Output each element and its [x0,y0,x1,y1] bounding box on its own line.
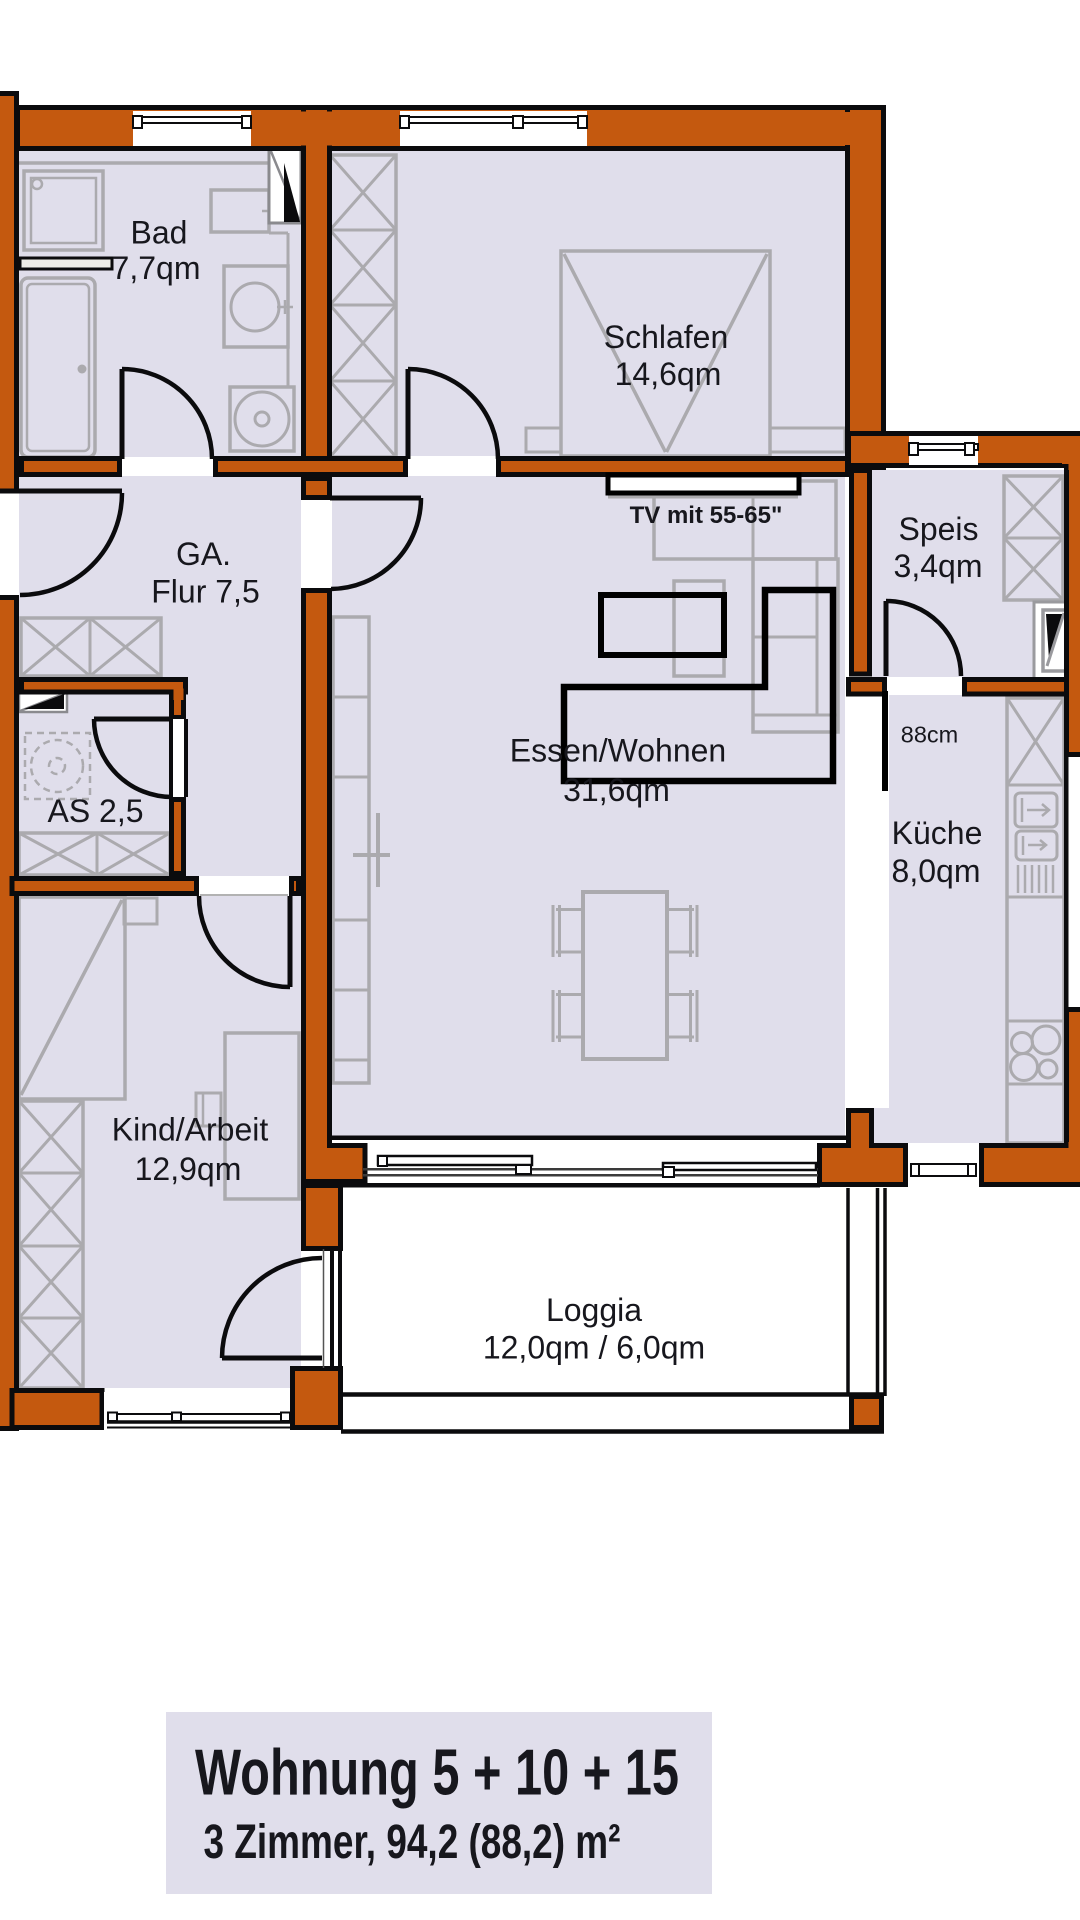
svg-text:TV mit 55-65": TV mit 55-65" [630,502,783,529]
svg-text:14,6qm: 14,6qm [615,356,722,392]
svg-text:Bad: Bad [131,215,188,251]
svg-text:7,7qm: 7,7qm [112,250,201,286]
svg-text:Schlafen: Schlafen [604,319,729,355]
svg-text:31,6qm: 31,6qm [563,772,670,808]
svg-text:Flur 7,5: Flur 7,5 [151,574,259,610]
svg-text:Küche: Küche [892,815,983,851]
svg-text:Loggia: Loggia [546,1292,642,1328]
svg-text:Wohnung 5 + 10 + 15: Wohnung 5 + 10 + 15 [195,1737,679,1809]
svg-text:3,4qm: 3,4qm [894,548,983,584]
svg-text:AS 2,5: AS 2,5 [47,793,143,829]
svg-text:12,0qm / 6,0qm: 12,0qm / 6,0qm [483,1330,705,1366]
svg-text:88cm: 88cm [901,722,958,748]
svg-text:Speis: Speis [898,511,978,547]
svg-text:Essen/Wohnen: Essen/Wohnen [510,733,726,769]
svg-text:12,9qm: 12,9qm [135,1151,242,1187]
svg-text:Kind/Arbeit: Kind/Arbeit [112,1112,269,1148]
svg-text:8,0qm: 8,0qm [892,853,981,889]
svg-text:3 Zimmer, 94,2 (88,2) m²: 3 Zimmer, 94,2 (88,2) m² [204,1815,621,1869]
svg-text:GA.: GA. [176,536,231,572]
